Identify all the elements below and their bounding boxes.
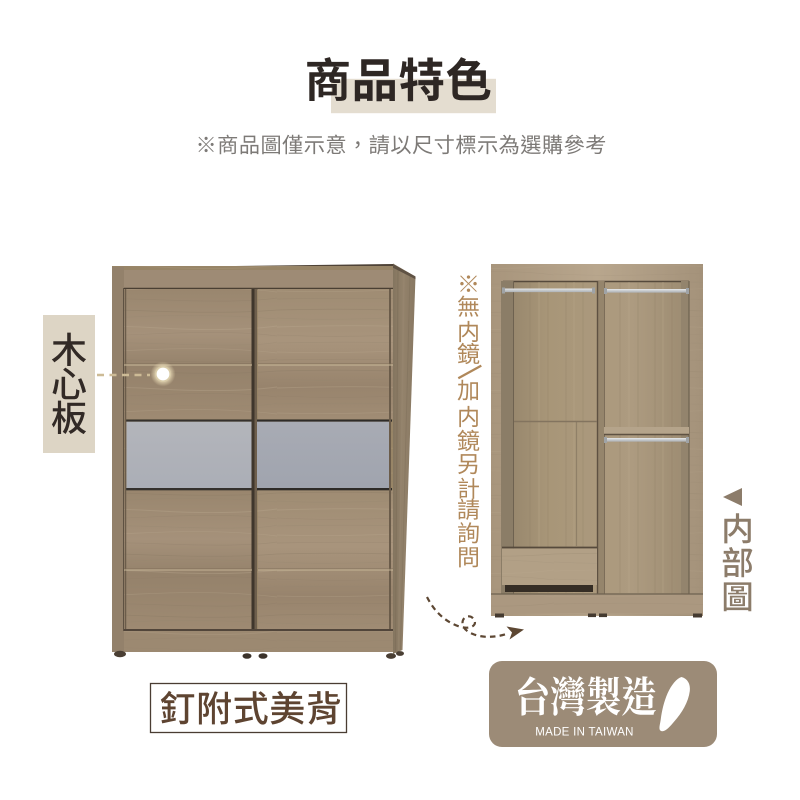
svg-text:MADE IN TAIWAN: MADE IN TAIWAN — [535, 727, 634, 739]
